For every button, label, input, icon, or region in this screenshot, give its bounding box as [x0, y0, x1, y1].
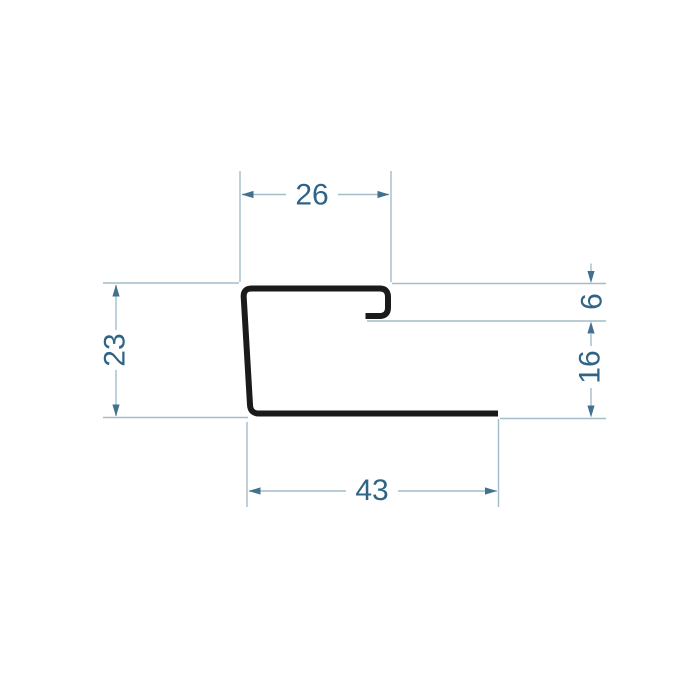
arrow-up-icon — [587, 322, 594, 334]
arrow-right-icon — [378, 191, 390, 198]
dimension-label-lip-opening: 6 — [576, 293, 609, 310]
profile-outline — [244, 289, 498, 414]
arrow-down-icon — [587, 406, 594, 418]
drawing-stage: 26 23 6 16 — [0, 0, 700, 700]
dimension-label-base-length: 43 — [355, 474, 388, 507]
arrow-up-icon — [112, 285, 119, 297]
technical-drawing-canvas: 26 23 6 16 — [0, 0, 700, 700]
dimension-overall-height: 23 — [99, 283, 249, 418]
arrow-left-icon — [249, 487, 261, 494]
arrow-down-icon — [587, 271, 594, 283]
dimension-hook-to-base: 16 — [500, 322, 607, 419]
arrow-right-icon — [485, 487, 497, 494]
arrow-left-icon — [242, 191, 254, 198]
arrow-down-icon — [112, 405, 119, 417]
dimension-label-top-width: 26 — [295, 179, 328, 212]
dimension-base-length: 43 — [247, 419, 499, 507]
dimension-label-hook-to-base: 16 — [574, 350, 607, 383]
dimension-lip-opening: 6 — [367, 264, 609, 322]
dimension-top-width: 26 — [240, 171, 391, 282]
dimension-label-overall-height: 23 — [99, 333, 132, 366]
